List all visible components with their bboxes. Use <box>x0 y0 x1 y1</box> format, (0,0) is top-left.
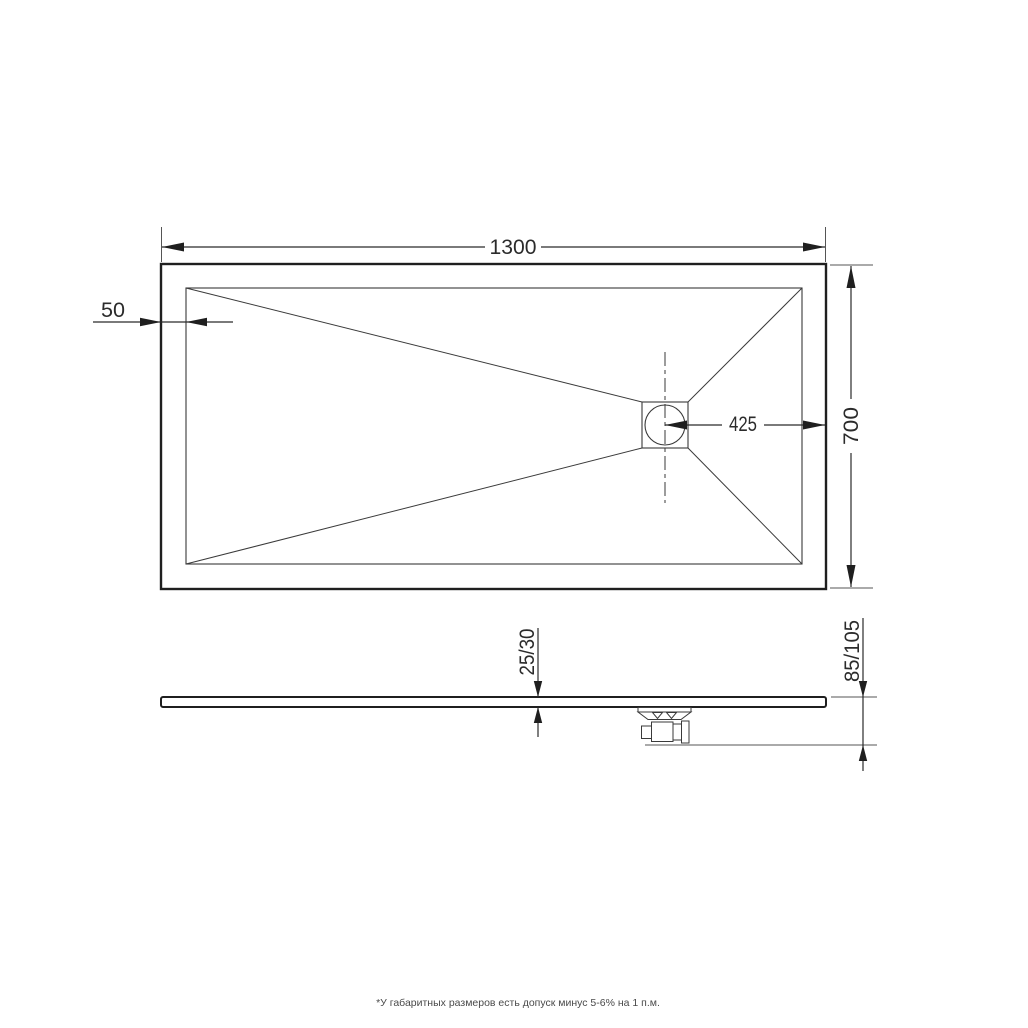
width-dimension-label: 700 <box>840 407 863 445</box>
length-dimension-label: 1300 <box>490 236 537 259</box>
arrowhead-down-icon <box>847 565 856 587</box>
side-view <box>161 697 826 743</box>
dimension-thickness-25-30: 25/30 <box>516 628 542 737</box>
tolerance-footnote: *У габаритных размеров есть допуск минус… <box>376 997 660 1009</box>
drain-flange-notch <box>667 713 677 719</box>
drain-offset-dimension-label: 425 <box>729 413 757 436</box>
arrowhead-right-icon <box>140 318 161 326</box>
arrowhead-left-icon <box>186 318 207 326</box>
arrowhead-right-icon <box>803 243 825 252</box>
arrowhead-down-icon <box>534 681 542 697</box>
rim-width-dimension-label: 50 <box>101 299 125 322</box>
arrowhead-right-icon <box>803 421 825 430</box>
trap-outlet-connector <box>673 724 682 740</box>
tray-slab-profile <box>161 697 826 707</box>
thickness-dimension-label: 25/30 <box>516 629 539 676</box>
drain-flange-body <box>638 712 691 720</box>
slope-line-top-left <box>186 288 642 402</box>
dimension-rim-50: 50 <box>93 299 233 326</box>
tray-inner-basin <box>186 288 802 564</box>
drain-trap-fitting <box>638 708 691 744</box>
arrowhead-down-icon <box>859 681 867 697</box>
trap-body <box>652 722 674 742</box>
total-height-dimension-label: 85/105 <box>841 620 864 682</box>
arrowhead-left-icon <box>665 421 687 430</box>
slope-line-bottom-right <box>688 448 802 564</box>
dimension-width-700: 700 <box>830 265 873 588</box>
arrowhead-up-icon <box>859 745 867 761</box>
dimension-height-85-105: 85/105 <box>645 618 877 771</box>
arrowhead-up-icon <box>534 707 542 723</box>
slope-line-top-right <box>688 288 802 402</box>
slope-line-bottom-left <box>186 448 642 564</box>
trap-inlet-left <box>642 726 652 739</box>
arrowhead-left-icon <box>162 243 184 252</box>
drain-flange-notch <box>653 713 663 719</box>
dimension-drain-offset-425: 425 <box>665 412 825 436</box>
drain-flange-bar <box>638 708 691 713</box>
dimension-length-1300: 1300 <box>162 227 826 262</box>
shower-tray-drawing: 1300 50 425 700 <box>0 0 1028 1028</box>
trap-outlet-nut <box>682 721 690 743</box>
arrowhead-up-icon <box>847 266 856 288</box>
drawing-page: 1300 50 425 700 <box>0 0 1028 1028</box>
